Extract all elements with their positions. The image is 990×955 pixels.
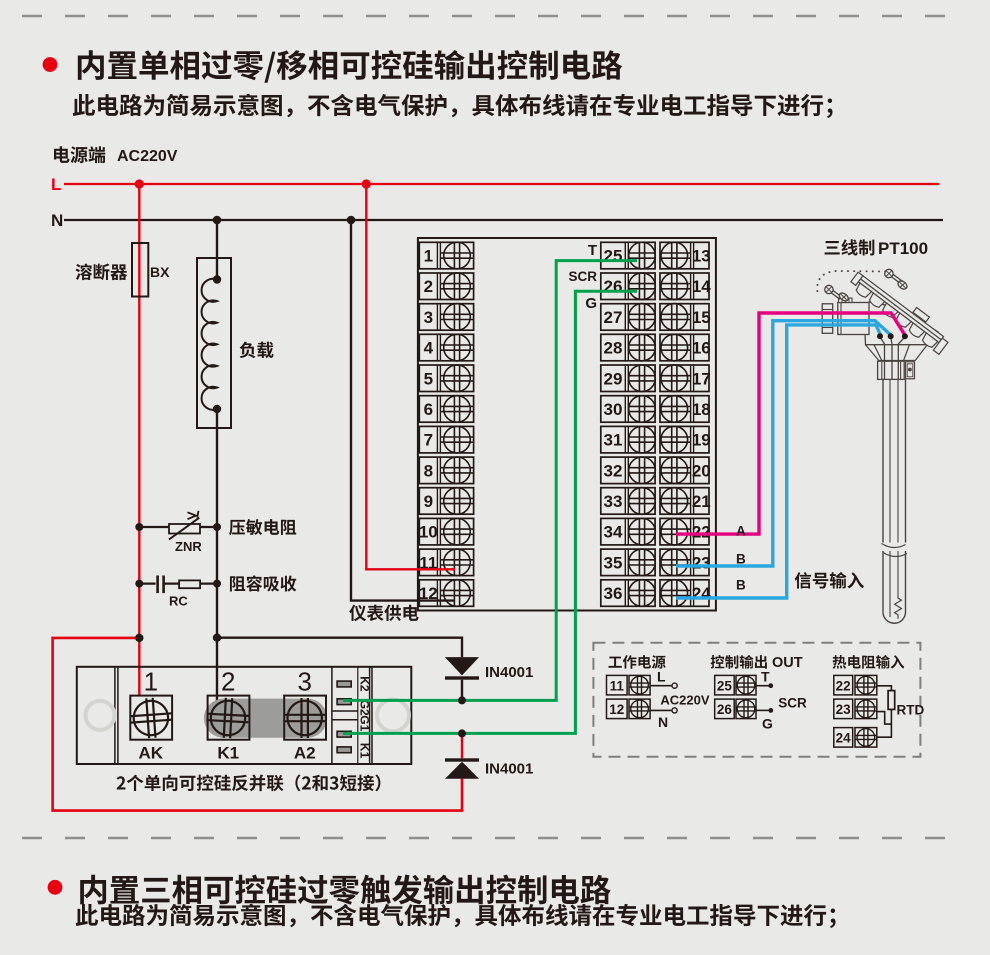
svg-text:29: 29 — [604, 369, 623, 388]
svg-text:1: 1 — [424, 247, 433, 266]
svg-text:RTD: RTD — [897, 703, 925, 718]
svg-text:32: 32 — [604, 461, 623, 480]
svg-text:SCR: SCR — [568, 269, 597, 284]
svg-text:18: 18 — [692, 400, 711, 419]
svg-text:3: 3 — [297, 667, 311, 697]
svg-text:IN4001: IN4001 — [485, 664, 533, 681]
svg-text:17: 17 — [692, 369, 711, 388]
svg-text:26: 26 — [604, 277, 623, 296]
svg-text:SCR: SCR — [778, 696, 807, 711]
svg-text:23: 23 — [836, 702, 852, 717]
svg-text:26: 26 — [717, 702, 733, 717]
svg-text:PT100: PT100 — [878, 239, 928, 258]
svg-text:2: 2 — [221, 667, 235, 697]
svg-text:1: 1 — [144, 667, 158, 697]
svg-text:AK: AK — [139, 744, 164, 763]
svg-text:A: A — [736, 524, 746, 539]
svg-text:3: 3 — [424, 308, 433, 327]
svg-text:L: L — [657, 669, 666, 685]
svg-text:21: 21 — [692, 492, 711, 511]
svg-text:K1: K1 — [217, 744, 239, 763]
svg-text:T: T — [761, 669, 770, 685]
svg-text:5: 5 — [424, 369, 433, 388]
svg-text:6: 6 — [424, 400, 433, 419]
svg-text:10: 10 — [419, 523, 438, 542]
svg-text:RC: RC — [169, 594, 188, 609]
svg-text:ZNR: ZNR — [175, 539, 202, 554]
svg-text:L: L — [51, 175, 61, 194]
svg-text:14: 14 — [692, 277, 711, 296]
svg-text:33: 33 — [604, 492, 623, 511]
svg-text:AC220V: AC220V — [660, 693, 709, 708]
svg-text:24: 24 — [692, 584, 711, 603]
svg-text:13: 13 — [692, 247, 711, 266]
svg-text:N: N — [658, 714, 668, 730]
svg-text:BX: BX — [150, 264, 170, 280]
svg-text:30: 30 — [604, 400, 623, 419]
svg-text:4: 4 — [424, 339, 434, 358]
svg-text:9: 9 — [424, 492, 433, 511]
svg-text:2: 2 — [424, 277, 433, 296]
svg-text:27: 27 — [604, 308, 623, 327]
svg-text:25: 25 — [717, 678, 733, 693]
svg-text:28: 28 — [604, 339, 623, 358]
svg-text:25: 25 — [604, 247, 623, 266]
svg-text:15: 15 — [692, 308, 711, 327]
svg-text:22: 22 — [692, 523, 711, 542]
svg-text:23: 23 — [692, 553, 711, 572]
svg-text:G: G — [762, 716, 773, 732]
svg-text:B: B — [736, 552, 746, 567]
svg-text:16: 16 — [692, 339, 711, 358]
svg-text:24: 24 — [836, 731, 852, 746]
svg-text:N: N — [51, 211, 63, 230]
svg-text:7: 7 — [424, 431, 433, 450]
svg-text:B: B — [736, 578, 746, 593]
svg-text:G: G — [585, 295, 597, 312]
svg-text:8: 8 — [424, 461, 433, 480]
svg-text:35: 35 — [604, 553, 623, 572]
svg-text:34: 34 — [604, 523, 623, 542]
svg-text:11: 11 — [610, 678, 625, 693]
svg-text:OUT: OUT — [772, 655, 803, 671]
svg-text:22: 22 — [836, 678, 851, 693]
svg-text:19: 19 — [692, 431, 711, 450]
svg-text:IN4001: IN4001 — [485, 761, 533, 778]
svg-text:T: T — [588, 242, 597, 259]
svg-text:20: 20 — [692, 461, 711, 480]
svg-text:12: 12 — [609, 702, 624, 717]
svg-text:36: 36 — [604, 584, 623, 603]
svg-text:AC220V: AC220V — [117, 148, 178, 165]
svg-text:A2: A2 — [294, 744, 316, 763]
svg-text:31: 31 — [604, 431, 623, 450]
